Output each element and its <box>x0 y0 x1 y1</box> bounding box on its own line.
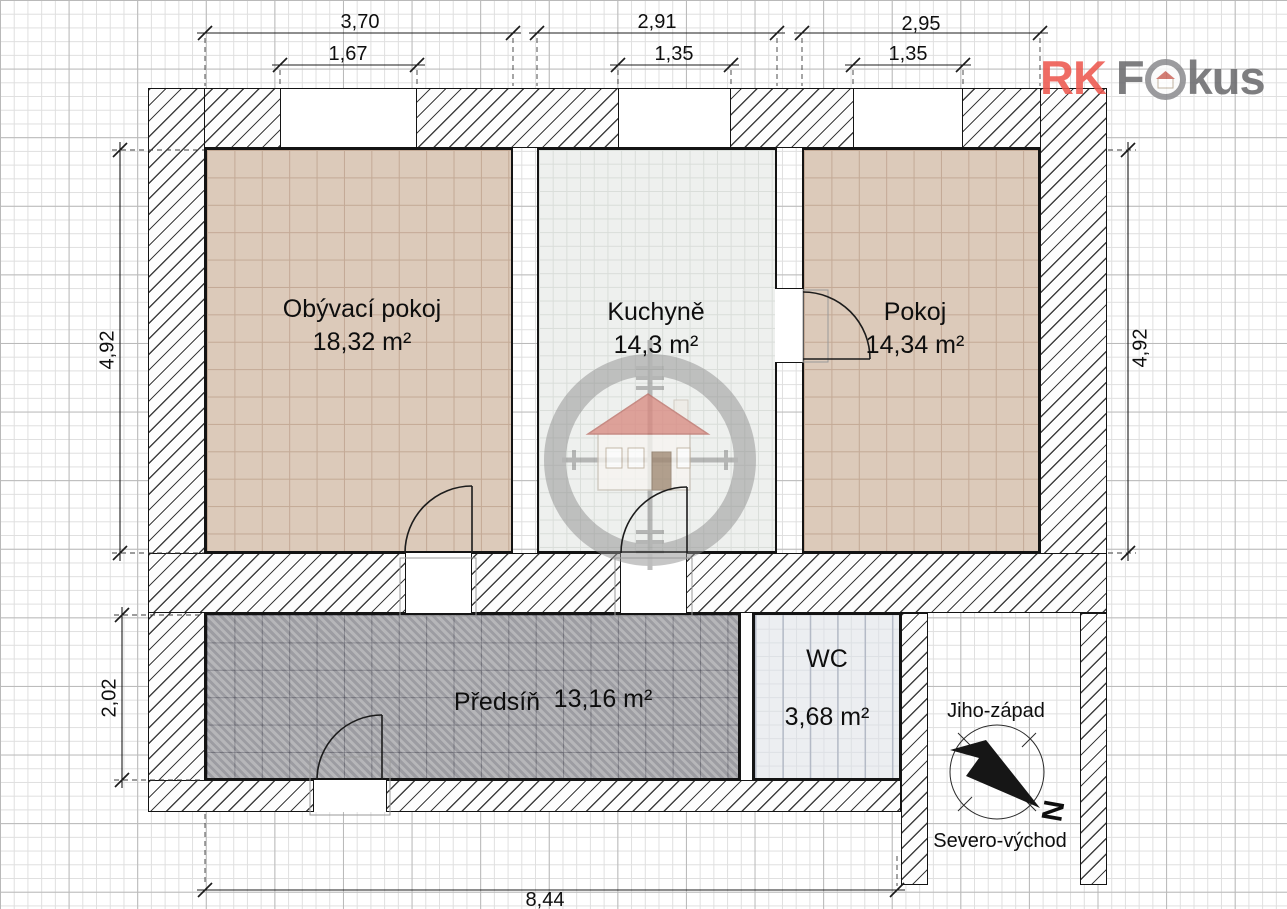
label-obyvaci-pokoj: Obývací pokoj 18,32 m² <box>283 293 441 359</box>
dim-top-1: 3,70 <box>341 11 380 34</box>
window-kuchyne <box>618 88 731 148</box>
room-area: 14,3 m² <box>607 329 704 362</box>
floorplan-canvas: 3,70 2,91 2,95 1,67 1,35 1,35 4,92 2,02 … <box>0 0 1287 909</box>
brand-logo: RK F kus <box>1040 50 1265 105</box>
wall-bottom <box>148 780 901 812</box>
brand-f: F <box>1116 50 1144 105</box>
label-predsin-name: Předsíň <box>454 686 540 719</box>
door-opening-kuchyne <box>620 553 687 613</box>
compass-north-letter: N <box>1033 797 1069 823</box>
brand-kus: kus <box>1187 50 1265 105</box>
window-obyvaci <box>280 88 417 148</box>
window-pokoj <box>853 88 963 148</box>
wall-predsin-wc <box>740 613 753 780</box>
brand-rk: RK <box>1040 50 1106 105</box>
dim-left-upper: 4,92 <box>97 331 120 370</box>
label-kuchyne: Kuchyně 14,3 m² <box>607 296 704 362</box>
compass-southwest-label: Jiho-západ <box>947 700 1045 723</box>
wall-porch-right <box>1080 613 1107 885</box>
room-area: 18,32 m² <box>283 326 441 359</box>
compass-northeast-label: Severo-východ <box>933 830 1066 853</box>
wall-right <box>1040 88 1107 613</box>
label-predsin-area: 13,16 m² <box>554 683 653 716</box>
room-area: 3,68 m² <box>785 701 870 734</box>
dim-left-lower: 2,02 <box>99 679 122 718</box>
dim-window-3: 1,35 <box>889 43 928 66</box>
room-area: 14,34 m² <box>866 329 965 362</box>
dim-top-2: 2,91 <box>638 11 677 34</box>
door-opening-entry <box>313 780 387 812</box>
dim-top-3: 2,95 <box>902 13 941 36</box>
wall-left <box>148 88 205 812</box>
dim-window-1: 1,67 <box>329 43 368 66</box>
north-arrow-icon <box>950 725 1044 819</box>
room-name: WC <box>785 643 870 676</box>
dim-window-2: 1,35 <box>655 43 694 66</box>
door-opening-pokoj <box>775 288 803 363</box>
wall-porch-left <box>901 613 928 885</box>
room-name: Kuchyně <box>607 296 704 329</box>
label-pokoj: Pokoj 14,34 m² <box>866 296 965 362</box>
dim-right: 4,92 <box>1130 329 1153 368</box>
house-in-circle-icon <box>1145 59 1186 100</box>
room-name: Obývací pokoj <box>283 293 441 326</box>
dim-bottom: 8,44 <box>526 889 565 909</box>
room-name: Pokoj <box>866 296 965 329</box>
label-wc: WC 3,68 m² <box>785 643 870 734</box>
door-opening-obyvaci <box>405 553 472 613</box>
